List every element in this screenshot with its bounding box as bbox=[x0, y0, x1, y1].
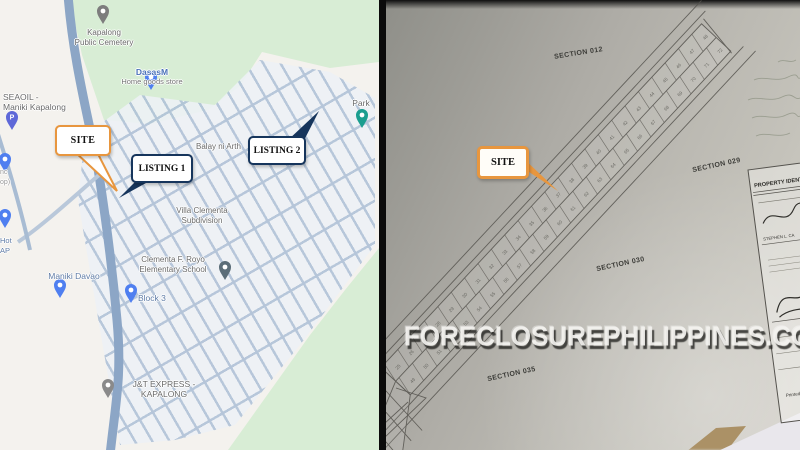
poi-label-dasasm: DasasM Home goods store bbox=[116, 58, 188, 96]
subdivision-plan-drawing: 2526272829303132333435363738394041424344… bbox=[386, 0, 800, 450]
poi-label-fragment-2: Hot AP bbox=[0, 236, 20, 255]
site-callout-left-label: SITE bbox=[71, 135, 96, 146]
poi-label-dasasm-sub: Home goods store bbox=[116, 77, 188, 87]
lot-strip: 2526272829303132333435363738394041424344… bbox=[386, 0, 767, 450]
poi-label-cemetery: Kapalong Public Cemetery bbox=[58, 28, 150, 47]
poi-label-fragment-1: nc op) bbox=[0, 168, 16, 187]
site-callout-right: SITE bbox=[477, 146, 529, 179]
poi-label-dasasm-title: DasasM bbox=[136, 67, 168, 77]
listing1-callout-label: LISTING 1 bbox=[139, 164, 186, 174]
listing2-callout-label: LISTING 2 bbox=[254, 146, 301, 156]
document-photo-panel: 2526272829303132333435363738394041424344… bbox=[386, 0, 800, 450]
handwritten-notes bbox=[748, 60, 800, 136]
park-pin-icon bbox=[356, 109, 368, 128]
edge-road bbox=[0, 128, 30, 250]
poi-label-seaoil: SEAOIL - Maniki Kapalong bbox=[3, 93, 75, 112]
site-callout-left: SITE bbox=[55, 125, 111, 156]
site-callout-right-label: SITE bbox=[491, 157, 515, 168]
parking-pin-icon: P bbox=[6, 111, 18, 130]
cemetery-pin-icon bbox=[97, 5, 109, 24]
shop-pin-icon-2 bbox=[0, 209, 11, 228]
poi-label-school: Clementa F. Royo Elementary School bbox=[132, 255, 214, 274]
block3-pin-icon bbox=[125, 284, 137, 303]
panel-divider bbox=[379, 0, 386, 450]
site-callout-tail bbox=[75, 152, 117, 191]
poi-label-block3: Block 3 bbox=[138, 294, 186, 304]
area-label-villa-clementa: Villa Clementa Subdivision bbox=[164, 206, 240, 225]
school-pin-icon bbox=[219, 261, 231, 280]
jt-express-pin-icon bbox=[102, 379, 114, 398]
poi-label-maniki-davao: Maniki Davao bbox=[38, 272, 110, 282]
title-block: PROPERTY IDENTIFICATION STEPHEN L. CA Pr… bbox=[748, 159, 800, 422]
side-road bbox=[18, 175, 99, 242]
maniki-davao-pin-icon bbox=[54, 279, 66, 298]
listing1-callout: LISTING 1 bbox=[131, 154, 193, 183]
watermark-text: FORECLOSUREPHILIPPINES.COM bbox=[404, 320, 800, 353]
map-panel: P Kapalong Public Cemetery DasasM Home g… bbox=[0, 0, 379, 450]
svg-text:P: P bbox=[10, 115, 15, 122]
composite-screenshot: P Kapalong Public Cemetery DasasM Home g… bbox=[0, 0, 800, 450]
poi-label-jt-express: J&T EXPRESS - KAPALONG bbox=[120, 380, 208, 399]
listing2-callout: LISTING 2 bbox=[248, 136, 306, 165]
poi-label-park: Park bbox=[346, 99, 376, 109]
